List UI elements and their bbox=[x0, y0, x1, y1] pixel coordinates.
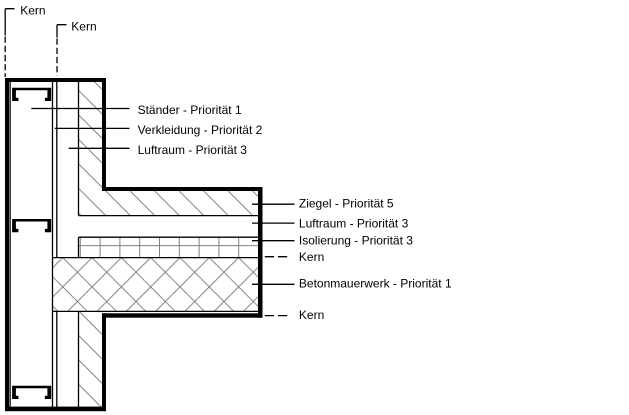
svg-text:Luftraum - Priorität 3: Luftraum - Priorität 3 bbox=[299, 217, 409, 231]
svg-text:Ziegel - Priorität 5: Ziegel - Priorität 5 bbox=[299, 197, 394, 211]
svg-text:Isolierung - Priorität 3: Isolierung - Priorität 3 bbox=[299, 234, 413, 248]
svg-text:Kern: Kern bbox=[71, 19, 96, 33]
svg-text:Kern: Kern bbox=[20, 3, 45, 17]
svg-text:Kern: Kern bbox=[299, 250, 324, 264]
svg-text:Betonmauerwerk - Priorität 1: Betonmauerwerk - Priorität 1 bbox=[299, 277, 452, 291]
svg-text:Verkleidung - Priorität 2: Verkleidung - Priorität 2 bbox=[138, 123, 263, 137]
svg-text:Kern: Kern bbox=[299, 308, 324, 322]
svg-text:Luftraum - Priorität 3: Luftraum - Priorität 3 bbox=[138, 143, 248, 157]
svg-text:Ständer - Priorität 1: Ständer - Priorität 1 bbox=[138, 103, 242, 117]
